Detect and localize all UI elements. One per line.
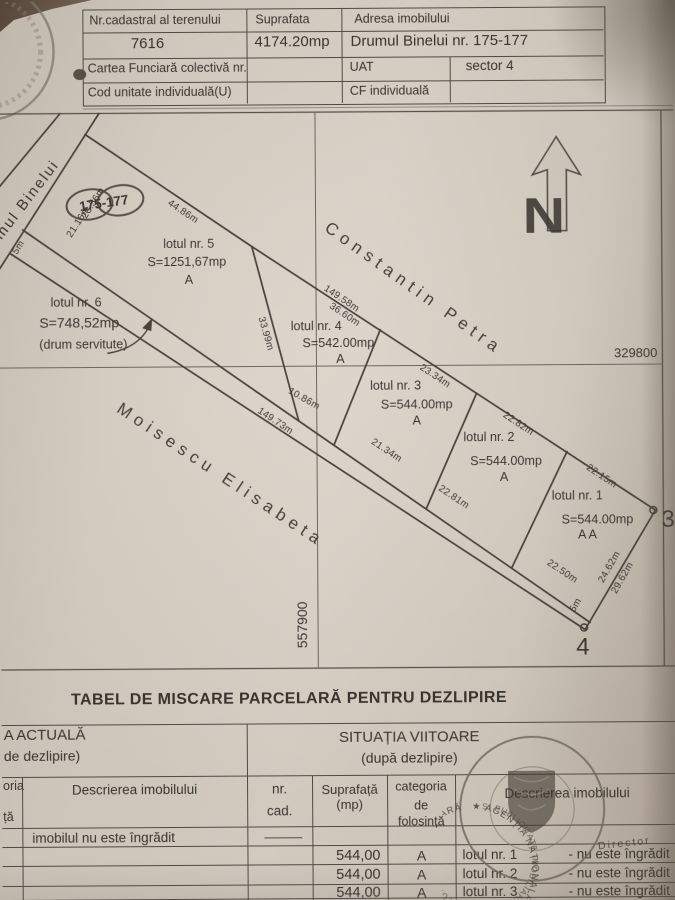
measure-lot3-sw: 21.34m (369, 436, 404, 464)
measure-sw-total: 149.73m (255, 406, 295, 437)
grid-line-vertical (315, 112, 318, 668)
measure-lot2-sw: 22.81m (436, 483, 471, 511)
area-column-header-2: (mp) (314, 798, 385, 813)
description-column-header: Descrierea imobilului (32, 783, 237, 799)
lot2-area: S=544.00mp (470, 454, 542, 468)
lot3-area: S=544.00mp (381, 397, 453, 411)
photo-bottom-shadow (0, 860, 675, 900)
lot1-cat: A A (578, 527, 598, 541)
measure-road-width: 5m (10, 239, 27, 257)
north-letter: N (522, 187, 565, 244)
servitude-line-ne (23, 226, 590, 625)
measure-divider54: 33.99m (256, 316, 276, 352)
lot3-name: lotul nr. 3 (370, 378, 421, 392)
lot3-cat: A (413, 413, 422, 427)
measure-lot5-ne: 44.86m (166, 198, 201, 226)
lot2-cat: A (500, 470, 509, 484)
lot4-cat: A (336, 352, 345, 366)
cadastral-nr-column-header-2: cad. (252, 804, 307, 819)
grid-x-label: 557900 (294, 601, 310, 648)
lot6-name: lotul nr. 6 (50, 295, 101, 309)
lot2-name: lotul nr. 2 (463, 430, 514, 444)
plan-frame-bottom (1, 666, 675, 670)
photo-topright-shadow (525, 0, 675, 150)
document-photo: Nr.cadastral al terenului Suprafata Adre… (0, 0, 675, 900)
grid-line-horizontal (0, 364, 662, 368)
category-column-fragment-2: ță (3, 811, 14, 825)
current-situation-fragment: A ACTUALĂ (4, 728, 86, 745)
measure-end-width: 5m (567, 596, 584, 614)
lot4-name: lotul nr. 4 (291, 319, 342, 333)
lot1-area: S=544.00mp (561, 512, 633, 526)
lot5-cat: A (185, 273, 194, 287)
north-arrow: N (522, 137, 581, 244)
area-column-header: Suprafață (314, 783, 385, 798)
measure-road-b: 21.16m (65, 205, 93, 240)
lot6-note: (drum servitute) (39, 337, 127, 352)
measure-lot1-sw: 22.50m (545, 557, 580, 585)
lot5-name: lotul nr. 5 (163, 237, 214, 251)
category-column-fragment: oria (3, 780, 24, 794)
point-4-label: 4 (576, 633, 590, 660)
cadastral-nr-column-header: nr. (252, 782, 307, 797)
lot1-name: lotul nr. 1 (552, 488, 603, 502)
boundary-ne-lot5 (85, 134, 252, 248)
note-row-text: imobilul nu este îngrădit (32, 831, 175, 847)
movement-table-title: TABEL DE MISCARE PARCELARĂ PENTRU DEZLIP… (61, 689, 516, 709)
lot4-area: S=542.00mp (302, 336, 374, 350)
lot5-area: S=1251,67mp (147, 255, 226, 269)
current-situation-fragment-2: de dezlipire) (4, 749, 80, 765)
lot6-area: S=748,52mp (39, 314, 119, 330)
neighbor-sw-label: Moisescu Elisabeta (114, 399, 329, 551)
measure-lot1-ne: 22.15m (584, 462, 619, 490)
divider-lot2-lot1 (511, 452, 568, 568)
